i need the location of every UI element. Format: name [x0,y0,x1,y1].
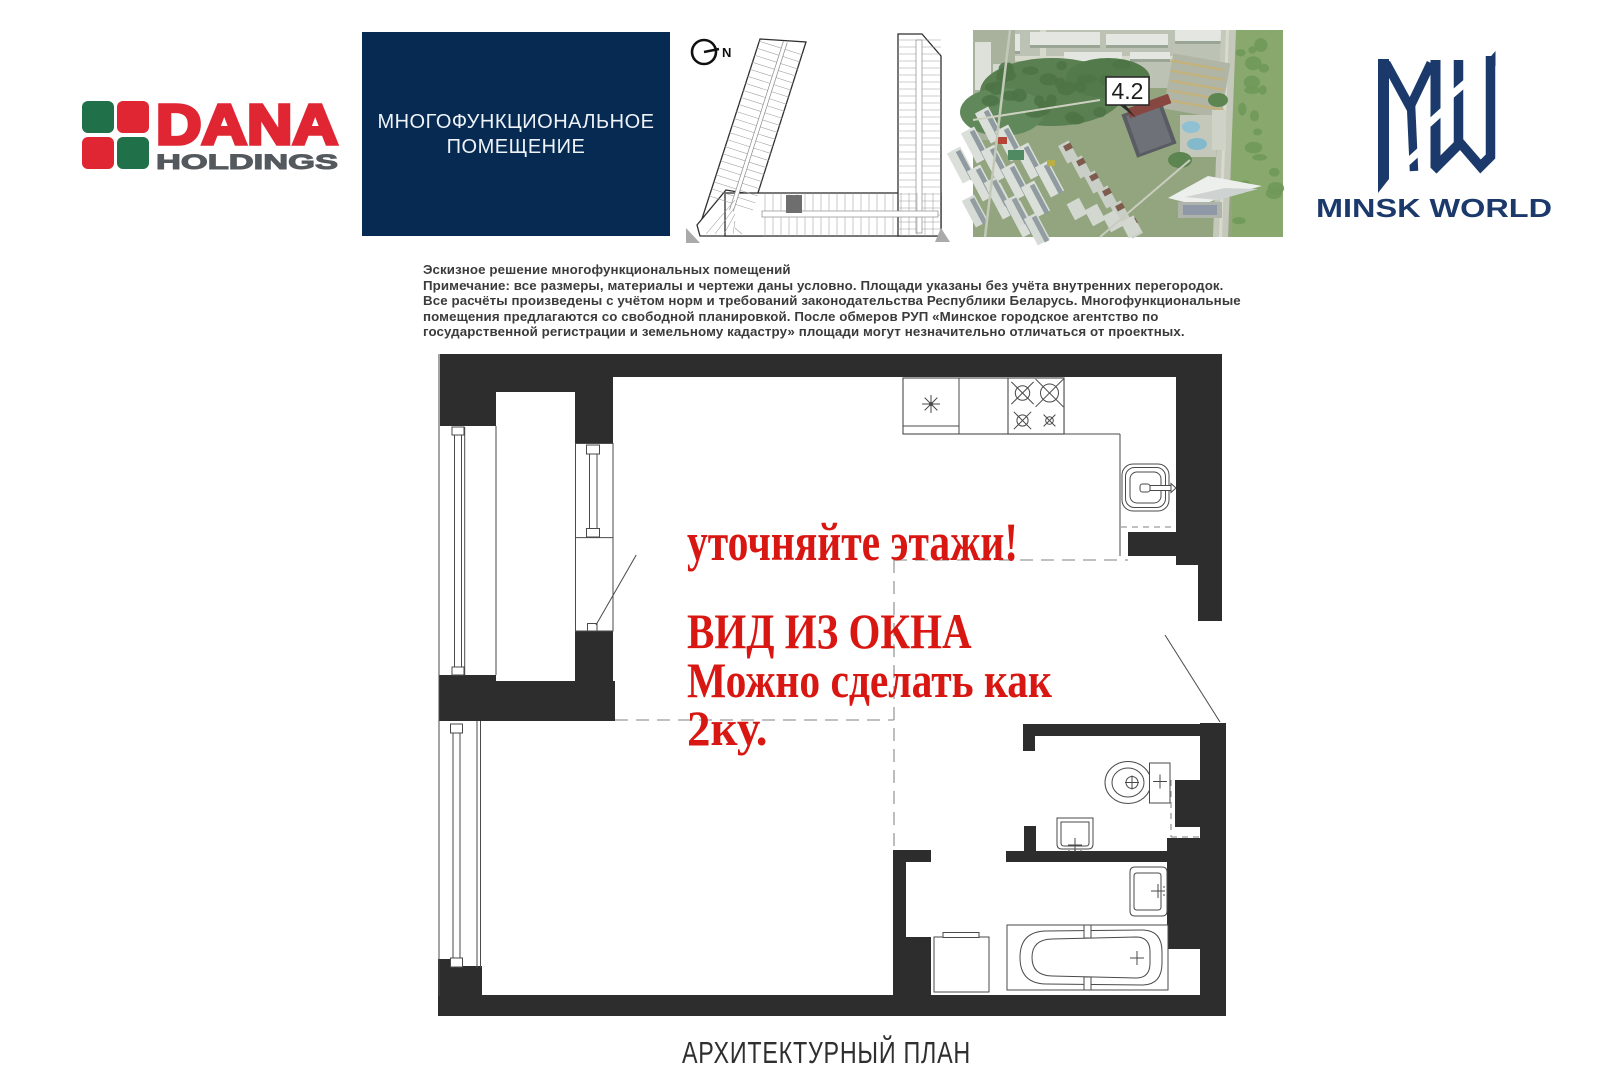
svg-text:N: N [722,45,731,60]
svg-text:МНОГОФУНКЦИОНАЛЬНОЕ: МНОГОФУНКЦИОНАЛЬНОЕ [377,111,654,133]
svg-text:DANA: DANA [156,93,338,157]
svg-text:HOLDINGS: HOLDINGS [156,151,338,174]
svg-text:4.2: 4.2 [1112,78,1144,104]
svg-text:MINSK WORLD: MINSK WORLD [1316,193,1552,223]
svg-text:ПОМЕЩЕНИЕ: ПОМЕЩЕНИЕ [447,136,586,158]
